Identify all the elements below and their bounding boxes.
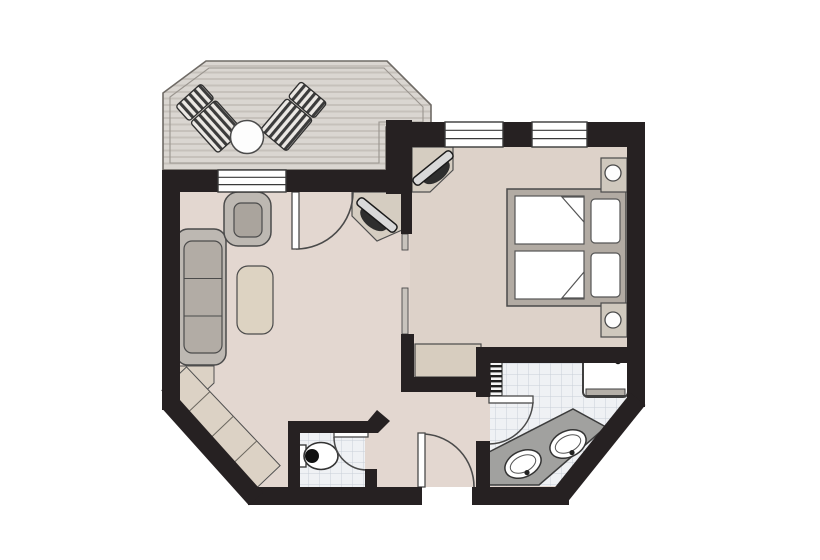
door-leaf [292, 192, 299, 249]
living-room-window [218, 170, 286, 192]
floor-plan-page [0, 0, 820, 560]
bedroom-window-2 [532, 122, 587, 147]
terrace-round-table [231, 121, 264, 154]
wc-right-wall-stub [365, 469, 377, 489]
right-wall [627, 122, 645, 407]
sliding-panel [402, 234, 408, 250]
door-leaf [418, 433, 425, 487]
bathroom-left-wall-upper [476, 347, 490, 397]
luggage-bench [415, 344, 481, 377]
armchair [224, 192, 271, 246]
sofa [176, 229, 226, 365]
wc-left-wall [288, 421, 300, 487]
bedroom-top-wall [386, 122, 645, 147]
wc-top-wall [288, 421, 377, 433]
floor-plan-drawing [0, 0, 820, 560]
wc-fixtures [296, 443, 338, 470]
bathroom-left-wall-lower [476, 441, 490, 489]
bedroom-window-1 [445, 122, 503, 147]
toilet-seat-icon [305, 449, 319, 463]
pillow-1 [591, 199, 620, 243]
partition-stub-upper [401, 192, 412, 234]
lamp-icon [605, 165, 621, 181]
left-wall [162, 170, 180, 410]
nightstand-bottom [601, 303, 627, 337]
pillow-2 [591, 253, 620, 297]
double-bed [507, 189, 626, 306]
sofa-cushions [184, 241, 222, 353]
door-leaf [489, 396, 533, 403]
coffee-table [237, 266, 273, 334]
bottom-wall-right [472, 487, 569, 505]
towel-radiator [490, 360, 502, 398]
bathroom-top-wall [476, 347, 645, 363]
bottom-wall-left [248, 487, 422, 505]
nightstand-top [601, 158, 627, 192]
lamp-icon [605, 312, 621, 328]
sliding-panel [402, 288, 408, 334]
